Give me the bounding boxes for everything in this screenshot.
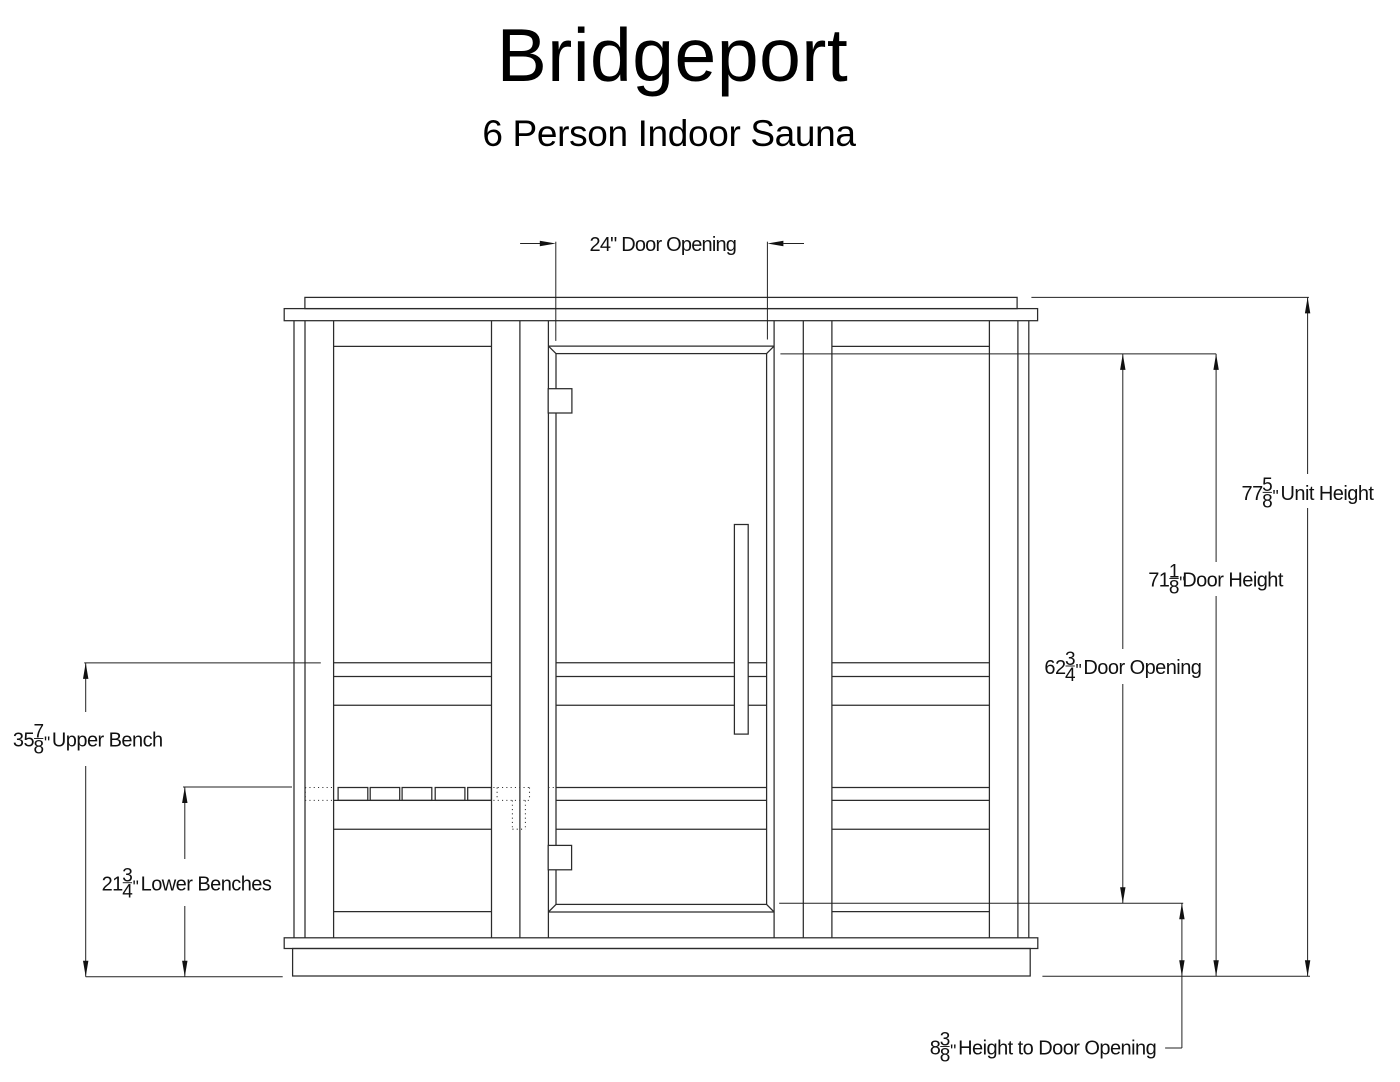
svg-text:62: 62 <box>1044 657 1066 679</box>
svg-text:21: 21 <box>102 874 124 896</box>
svg-text:Height to Door Opening: Height to Door Opening <box>953 1037 1156 1059</box>
svg-text:71: 71 <box>1148 569 1170 591</box>
svg-text:Upper Bench: Upper Bench <box>47 729 163 751</box>
svg-text:Door Opening: Door Opening <box>1078 657 1201 679</box>
svg-text:8: 8 <box>1262 491 1272 512</box>
svg-text:8: 8 <box>1169 578 1179 599</box>
svg-text:77: 77 <box>1242 483 1264 505</box>
svg-text:8: 8 <box>34 738 44 759</box>
svg-text:35: 35 <box>13 729 35 751</box>
svg-text:4: 4 <box>1065 665 1076 686</box>
svg-text:Door Height: Door Height <box>1182 569 1284 591</box>
svg-text:24" Door Opening: 24" Door Opening <box>590 234 737 256</box>
svg-text:4: 4 <box>122 882 133 903</box>
svg-text:8: 8 <box>940 1046 950 1067</box>
svg-text:Unit Height: Unit Height <box>1276 483 1375 505</box>
svg-text:Lower Benches: Lower Benches <box>136 874 272 896</box>
